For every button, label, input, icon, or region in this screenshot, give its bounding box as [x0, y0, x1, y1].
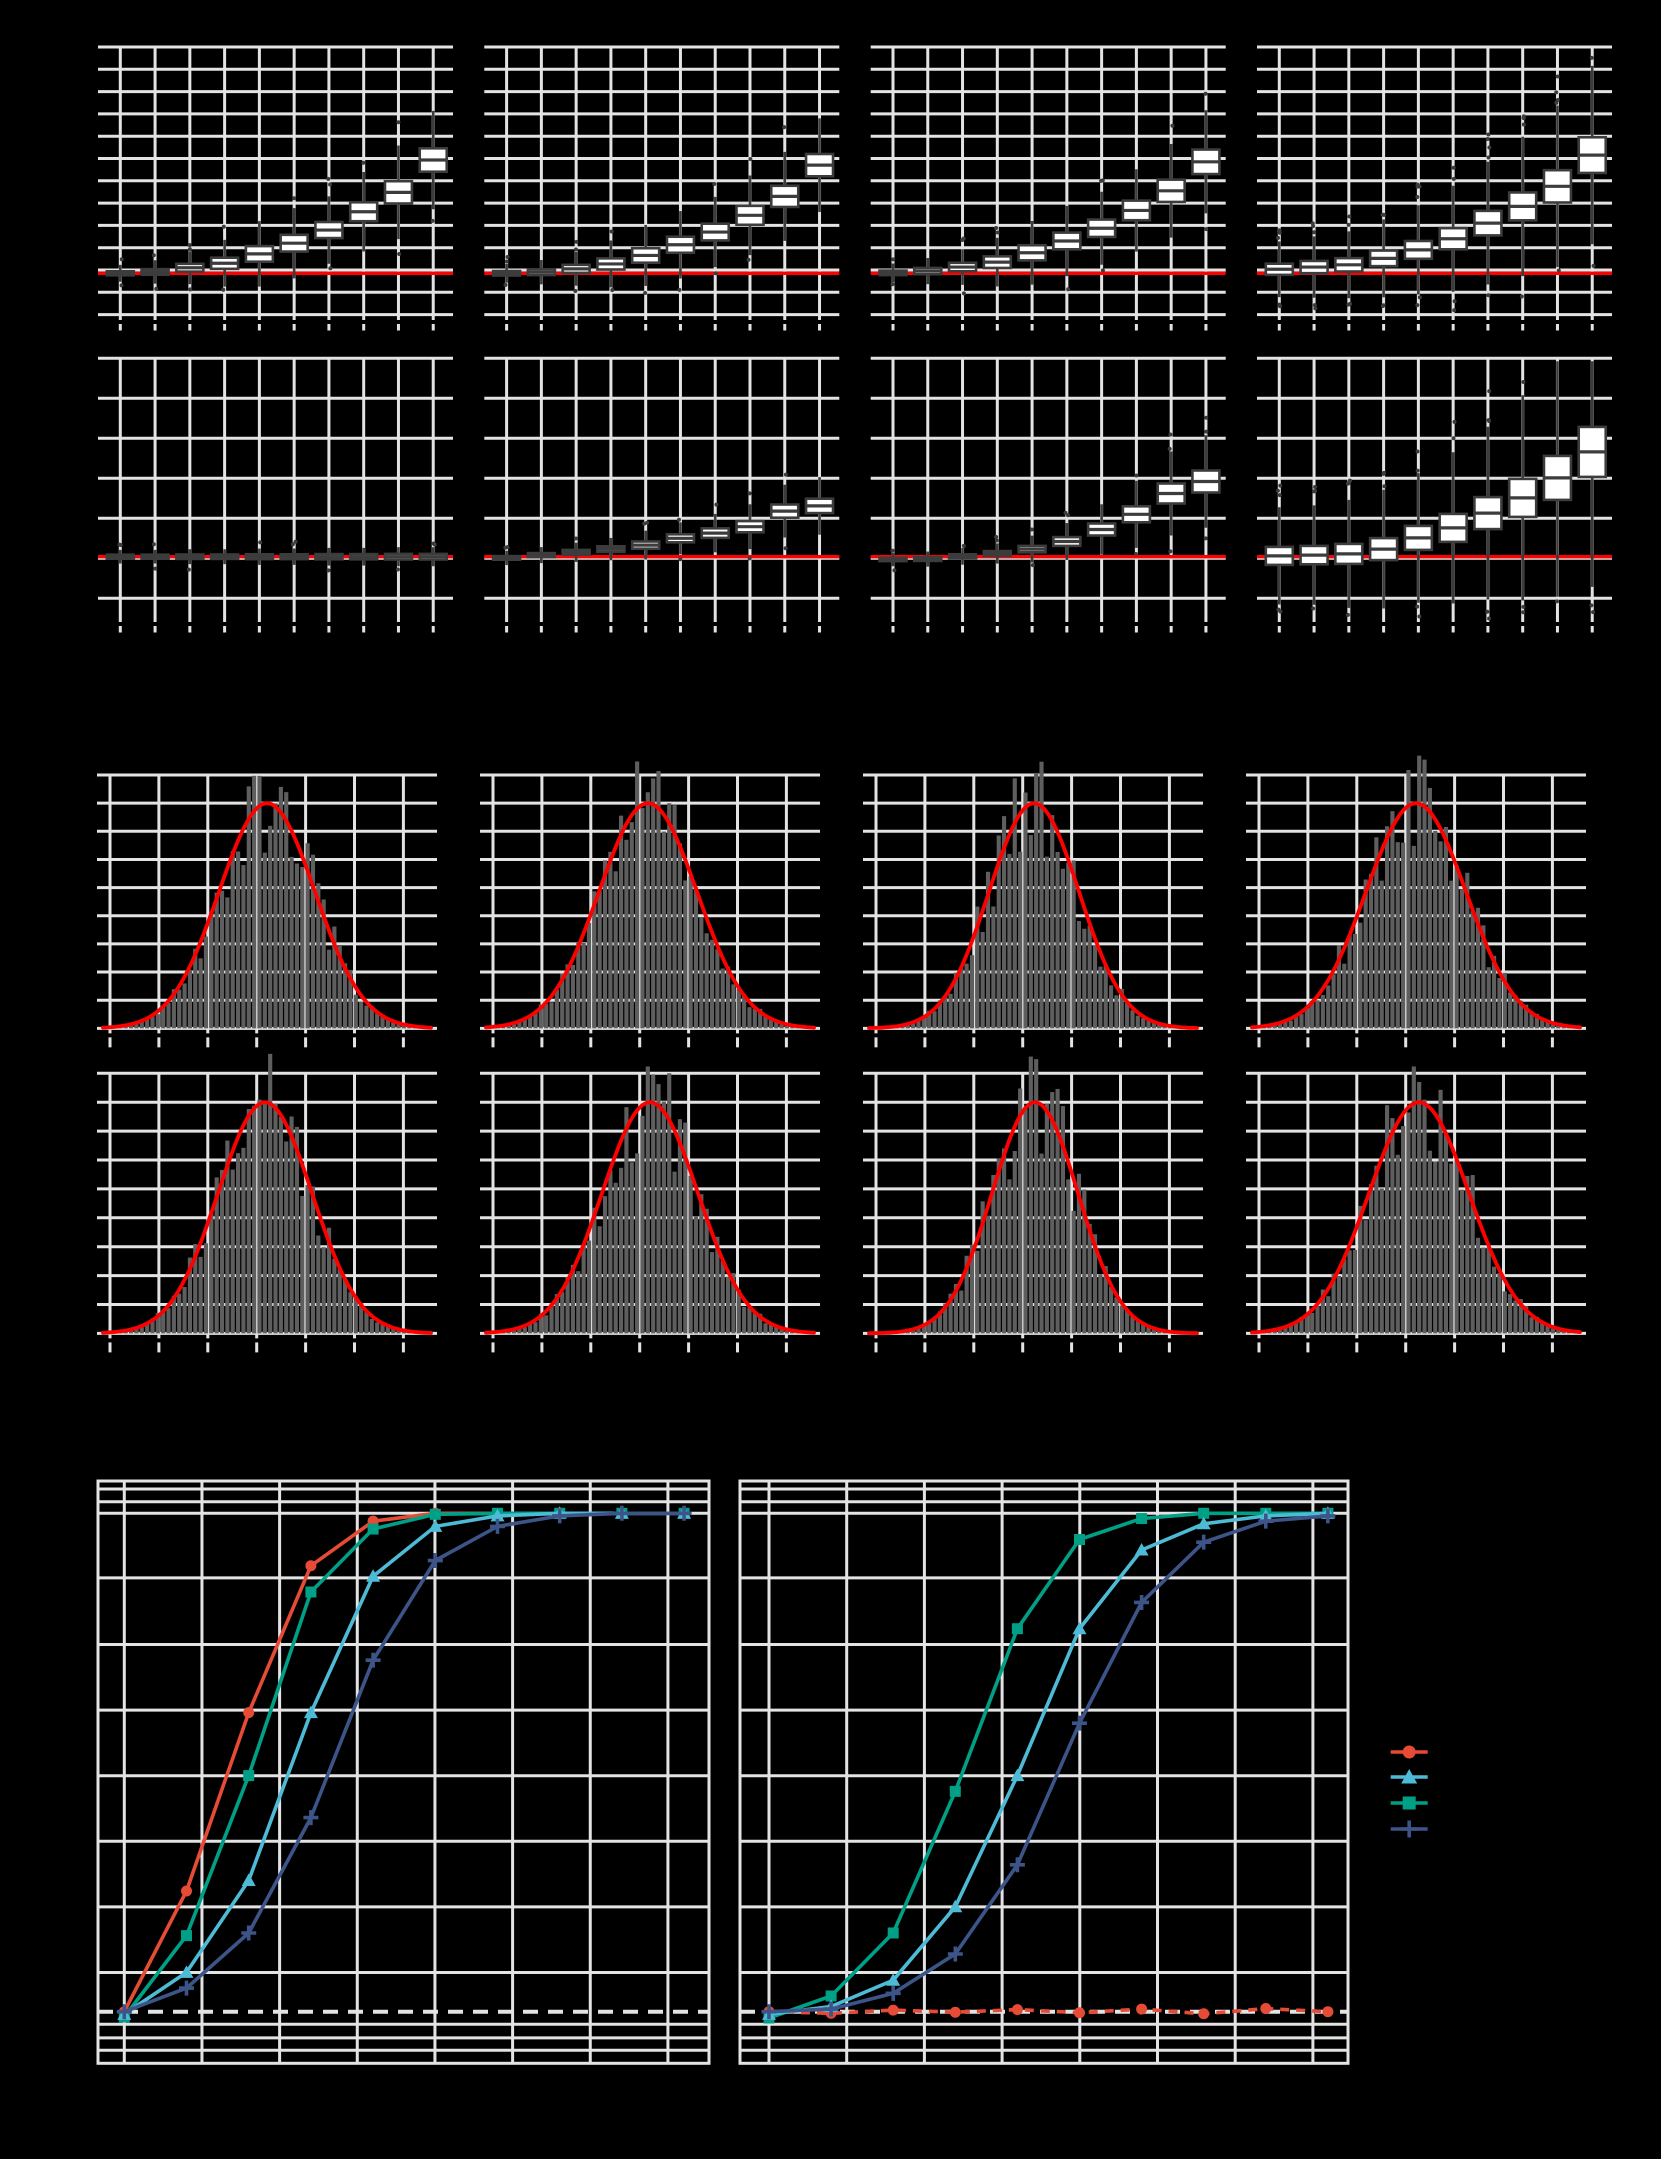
figure-canvas: [0, 0, 1661, 2159]
legend-circle-icon: [1403, 1746, 1416, 1759]
legend-square-icon: [1403, 1797, 1416, 1810]
figure: [0, 0, 1661, 2159]
